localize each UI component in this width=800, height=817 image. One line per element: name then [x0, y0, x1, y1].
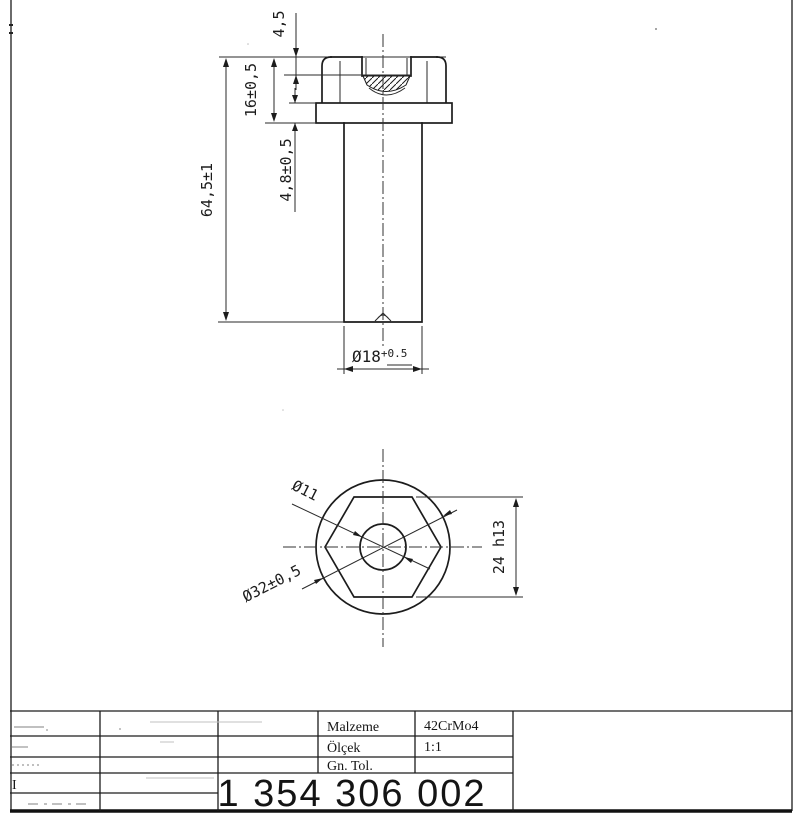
tolerance-label: Gn. Tol.: [327, 759, 373, 774]
front-view: 64,5±1 16±0,5 4,5 4,8±0,5: [198, 10, 452, 374]
part-number: 1 354 306 002: [217, 773, 486, 815]
dim-text-bore-diameter: Ø11: [289, 476, 321, 504]
title-block: Malzeme 42CrMo4 Ölçek 1:1 Gn. Tol. 1 354…: [10, 711, 792, 815]
dim-text-hex-across-flats: 24 h13: [490, 520, 508, 574]
bottom-view: 24 h13 Ø11 Ø32±0,5: [239, 449, 523, 647]
dim-text-head-height: 16±0,5: [242, 63, 260, 117]
drawing-sheet: 64,5±1 16±0,5 4,5 4,8±0,5: [0, 0, 800, 817]
dim-text-overall-length: 64,5±1: [198, 163, 216, 217]
dim-flange-diameter: Ø32±0,5: [239, 510, 457, 606]
scan-specks: [247, 28, 657, 411]
socket-recess: [284, 57, 411, 95]
dim-text-shaft-diameter: Ø18+0.5: [352, 347, 407, 366]
dim-text-flange-diameter: Ø32±0,5: [239, 561, 304, 606]
dim-head-height: 16±0,5: [242, 58, 316, 123]
material-label: Malzeme: [327, 720, 379, 735]
flange: [316, 103, 452, 123]
dim-bore-diameter: Ø11: [289, 476, 430, 569]
scale-label: Ölçek: [327, 739, 360, 756]
dim-text-flange-thickness: 4,8±0,5: [277, 138, 295, 201]
dim-flange-thickness: 4,8±0,5: [277, 88, 316, 212]
revision-mark: I: [12, 778, 17, 793]
dim-text-recess-depth: 4,5: [270, 10, 288, 37]
scale-value: 1:1: [424, 740, 442, 755]
material-value: 42CrMo4: [424, 719, 478, 734]
